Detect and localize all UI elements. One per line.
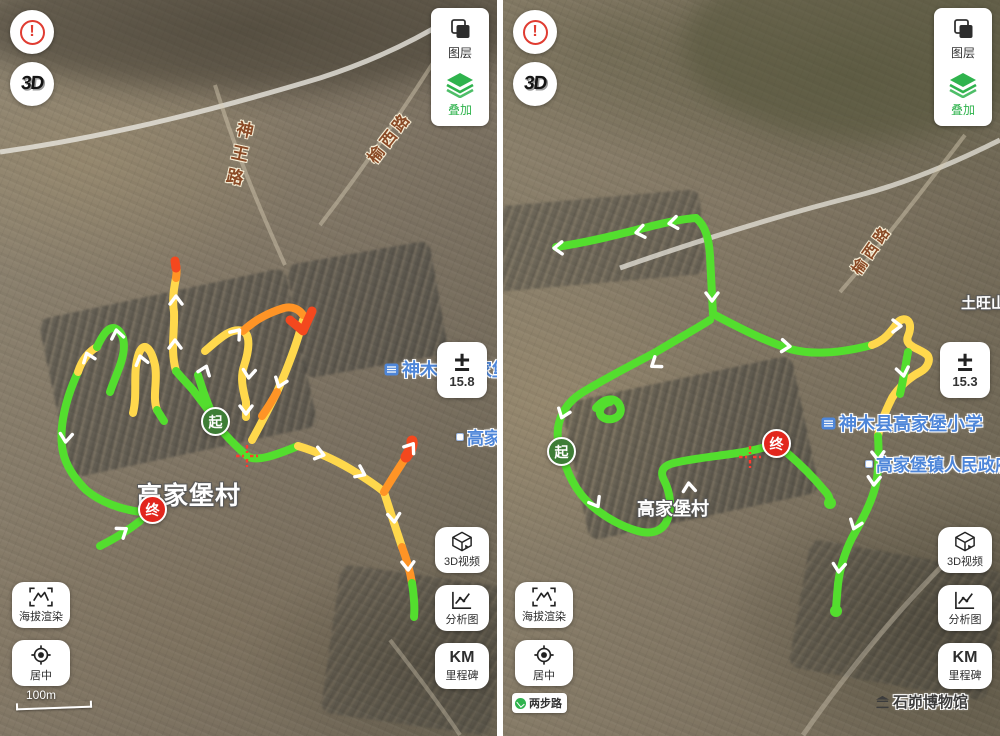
start-marker: 起 bbox=[201, 407, 230, 436]
scale-bar: 100m bbox=[16, 688, 92, 709]
overlay-label: 叠加 bbox=[448, 101, 472, 118]
warning-button[interactable]: ! bbox=[10, 10, 54, 54]
plus-minus-icon: ± bbox=[957, 349, 972, 374]
zoom-level-indicator[interactable]: ± 15.8 bbox=[437, 342, 487, 398]
center-target-icon bbox=[533, 644, 555, 666]
analysis-chart-label: 分析图 bbox=[949, 611, 982, 627]
threed-icon: 3D bbox=[20, 73, 45, 95]
layers-button[interactable]: 图层 bbox=[951, 17, 975, 61]
start-marker: 起 bbox=[547, 437, 576, 466]
scale-line bbox=[16, 701, 92, 711]
center-button[interactable]: 居中 bbox=[12, 640, 70, 686]
warning-icon: ! bbox=[20, 20, 45, 45]
km-icon: KM bbox=[953, 650, 978, 666]
track-overlay-left bbox=[0, 0, 497, 736]
map-panel-right: 榆西路 土旺山 神木县高家堡小学 高家堡镇人民政府 高家堡村 石峁博物馆 起 终… bbox=[503, 0, 1000, 736]
km-icon: KM bbox=[450, 650, 475, 666]
warning-icon: ! bbox=[523, 20, 548, 45]
layers-icon bbox=[448, 17, 472, 41]
center-button[interactable]: 居中 bbox=[515, 640, 573, 686]
3d-video-button[interactable]: 3D视频 bbox=[938, 527, 992, 573]
overlay-button[interactable]: 叠加 bbox=[445, 72, 475, 118]
analysis-chart-button[interactable]: 分析图 bbox=[938, 585, 992, 631]
map-center-crosshair bbox=[737, 444, 763, 470]
overlay-icon bbox=[948, 72, 978, 98]
analysis-chart-label: 分析图 bbox=[446, 611, 479, 627]
line-chart-icon bbox=[451, 590, 473, 610]
elevation-icon bbox=[532, 587, 556, 607]
brand-logo-icon bbox=[515, 698, 526, 709]
threed-icon: 3D bbox=[523, 73, 548, 95]
map-panel-left: 神王路 榆西路 神木县高家堡小学 高家堡镇人民政府 高家堡村 起 终 ! 3D … bbox=[0, 0, 497, 736]
plus-minus-icon: ± bbox=[454, 349, 469, 374]
layers-button[interactable]: 图层 bbox=[448, 17, 472, 61]
3d-video-label: 3D视频 bbox=[444, 553, 480, 569]
elevation-render-label: 海拔渲染 bbox=[19, 608, 63, 624]
end-marker: 终 bbox=[138, 495, 167, 524]
threed-toggle-button[interactable]: 3D bbox=[10, 62, 54, 106]
milestone-button[interactable]: KM 里程碑 bbox=[938, 643, 992, 689]
elevation-render-button[interactable]: 海拔渲染 bbox=[12, 582, 70, 628]
center-target-icon bbox=[30, 644, 52, 666]
overlay-icon bbox=[445, 72, 475, 98]
scale-text: 100m bbox=[26, 688, 92, 702]
3d-video-label: 3D视频 bbox=[947, 553, 983, 569]
panel-divider bbox=[497, 0, 503, 736]
track-overlay-right bbox=[503, 0, 1000, 736]
overlay-button[interactable]: 叠加 bbox=[948, 72, 978, 118]
warning-button[interactable]: ! bbox=[513, 10, 557, 54]
cube-play-icon bbox=[954, 531, 976, 552]
elevation-render-label: 海拔渲染 bbox=[522, 608, 566, 624]
milestone-label: 里程碑 bbox=[949, 667, 982, 683]
milestone-label: 里程碑 bbox=[446, 667, 479, 683]
map-center-crosshair bbox=[234, 443, 260, 469]
layers-label: 图层 bbox=[951, 44, 975, 61]
milestone-button[interactable]: KM 里程碑 bbox=[435, 643, 489, 689]
brand-watermark: 两步路 bbox=[512, 693, 567, 713]
zoom-level-indicator[interactable]: ± 15.3 bbox=[940, 342, 990, 398]
zoom-level-value: 15.3 bbox=[952, 374, 977, 389]
center-label: 居中 bbox=[533, 667, 555, 683]
cube-play-icon bbox=[451, 531, 473, 552]
elevation-render-button[interactable]: 海拔渲染 bbox=[515, 582, 573, 628]
elevation-icon bbox=[29, 587, 53, 607]
overlay-label: 叠加 bbox=[951, 101, 975, 118]
3d-video-button[interactable]: 3D视频 bbox=[435, 527, 489, 573]
center-label: 居中 bbox=[30, 667, 52, 683]
zoom-level-value: 15.8 bbox=[449, 374, 474, 389]
layers-panel: 图层 叠加 bbox=[934, 8, 992, 126]
layers-icon bbox=[951, 17, 975, 41]
threed-toggle-button[interactable]: 3D bbox=[513, 62, 557, 106]
end-marker: 终 bbox=[762, 429, 791, 458]
brand-name: 两步路 bbox=[529, 695, 562, 711]
line-chart-icon bbox=[954, 590, 976, 610]
layers-panel: 图层 叠加 bbox=[431, 8, 489, 126]
analysis-chart-button[interactable]: 分析图 bbox=[435, 585, 489, 631]
layers-label: 图层 bbox=[448, 44, 472, 61]
